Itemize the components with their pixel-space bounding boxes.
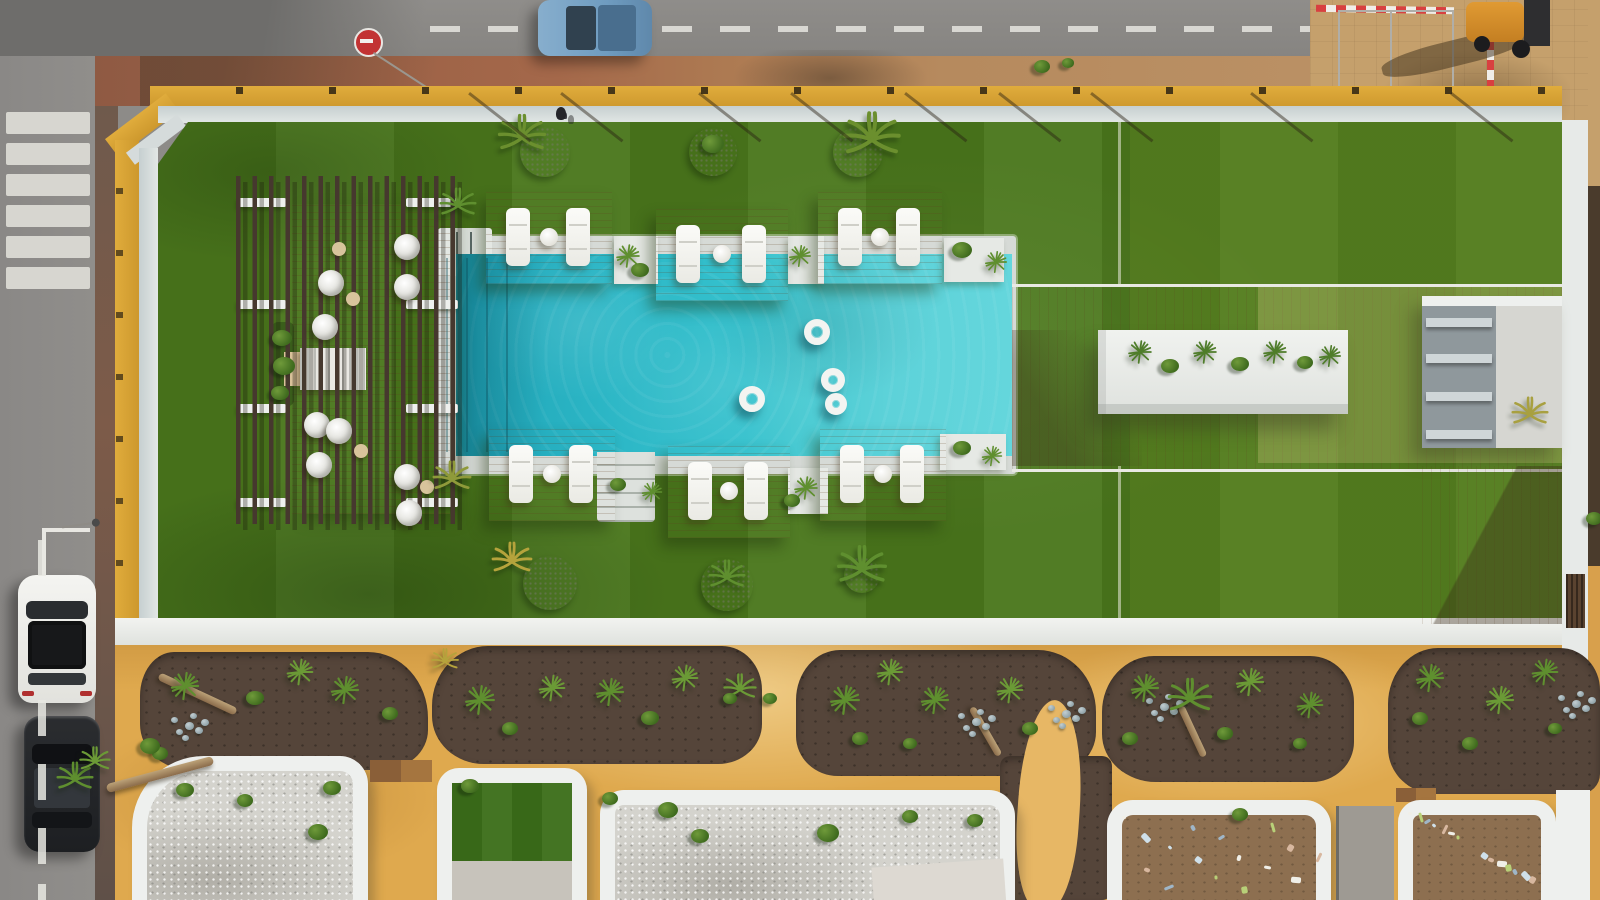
- perimeter-wall-top: [150, 86, 1562, 108]
- shrub-tuft: [1034, 60, 1050, 73]
- car-roof: [598, 5, 636, 51]
- stone: [1577, 691, 1584, 697]
- sun-lounger: [900, 445, 924, 503]
- deck-shadow-diagonal: [1422, 466, 1562, 624]
- round-lounge-chair: [396, 500, 422, 526]
- stone: [182, 735, 189, 741]
- structure-shelf: [1426, 430, 1492, 439]
- perimeter-wall-left: [115, 140, 139, 622]
- sun-lounger: [569, 445, 593, 503]
- agave-plant: [826, 681, 864, 719]
- stone: [1563, 707, 1570, 713]
- shrub-tuft: [1297, 356, 1313, 369]
- stone: [1078, 707, 1086, 714]
- grass-plant: [490, 540, 534, 584]
- road-dash: [38, 700, 46, 736]
- structure-shelf: [1426, 354, 1492, 363]
- coping-bottom: [115, 618, 1565, 645]
- stone: [195, 727, 203, 734]
- shrub-tuft: [1462, 737, 1478, 750]
- palm-plant: [78, 745, 112, 779]
- car-taillight: [80, 691, 92, 696]
- grass-plant: [1510, 395, 1550, 435]
- stone: [958, 713, 965, 719]
- car-roof: [28, 621, 86, 669]
- stone: [185, 722, 194, 730]
- forklift-wheel: [1474, 36, 1490, 52]
- lounger-platform: [668, 446, 790, 538]
- stone: [1048, 705, 1055, 711]
- shrub-tuft: [1122, 732, 1138, 745]
- sun-lounger: [742, 225, 766, 283]
- shrub-tuft: [273, 357, 295, 375]
- lounger-platform: [820, 429, 946, 521]
- shrub-tuft: [1232, 808, 1248, 821]
- agave-plant: [917, 682, 953, 718]
- construction-debris: [1408, 812, 1412, 815]
- shrub-tuft: [308, 824, 328, 840]
- car-rear-window: [32, 812, 92, 828]
- agave-plant: [979, 443, 1005, 469]
- car-windshield: [566, 6, 596, 50]
- forklift-cab: [1466, 2, 1524, 42]
- parked-car-blue: [538, 0, 652, 56]
- side-table: [543, 465, 561, 483]
- sun-lounger: [506, 208, 530, 266]
- stone: [963, 725, 970, 731]
- stone: [190, 713, 197, 719]
- shrub-tuft: [140, 738, 160, 754]
- stone: [1572, 700, 1581, 708]
- construction-debris: [1241, 886, 1248, 894]
- agave-plant: [283, 655, 317, 689]
- stone: [1558, 695, 1565, 701]
- pool-float-ring: [739, 386, 765, 412]
- shrub-tuft: [702, 135, 724, 153]
- pergola-side-table: [346, 292, 360, 306]
- sun-lounger: [688, 462, 712, 520]
- person-on-lawn: [556, 107, 566, 120]
- round-lounge-chair: [394, 234, 420, 260]
- agave-plant: [1412, 660, 1448, 696]
- grass-plant: [430, 647, 460, 677]
- structure-shelf: [1426, 318, 1492, 327]
- pergola-side-table: [354, 444, 368, 458]
- patio-turf-grass: [452, 783, 572, 861]
- crosswalk-stripe: [6, 174, 90, 196]
- shrub-tuft: [502, 722, 518, 735]
- shrub-tuft: [602, 792, 618, 805]
- construction-debris: [1456, 835, 1459, 839]
- patio-turf: [437, 768, 587, 900]
- gray-corridor: [1336, 806, 1394, 900]
- pool-lane-line: [486, 258, 488, 452]
- agave-plant: [535, 671, 569, 705]
- agave-plant: [873, 655, 907, 689]
- agave-plant: [327, 672, 363, 708]
- structure-shelf: [1426, 392, 1492, 401]
- structure-beam: [1422, 296, 1562, 306]
- construction-debris: [1122, 816, 1126, 819]
- round-lounge-chair: [312, 314, 338, 340]
- shrub-tuft: [382, 707, 398, 720]
- stone: [982, 723, 990, 730]
- round-lounge-chair: [326, 418, 352, 444]
- pool-float-ring: [804, 319, 830, 345]
- palm-plant: [835, 543, 889, 597]
- agave-plant: [167, 668, 203, 704]
- agave-plant: [1293, 688, 1327, 722]
- sun-lounger: [676, 225, 700, 283]
- round-lounge-chair: [306, 452, 332, 478]
- shrub-tuft: [610, 478, 626, 491]
- crosswalk-stripe: [6, 143, 90, 165]
- agave-plant: [1528, 655, 1562, 689]
- stone: [1569, 713, 1576, 719]
- pool-lane-line: [506, 258, 508, 452]
- round-lounge-chair: [394, 274, 420, 300]
- shrub-tuft: [237, 794, 253, 807]
- pergola-slats: [236, 176, 460, 524]
- patio-gravel: [132, 756, 368, 900]
- road-dash: [38, 884, 46, 900]
- road-dash: [38, 540, 46, 576]
- lounger-platform: [486, 192, 612, 284]
- shrub-tuft: [1062, 58, 1074, 68]
- stone: [969, 731, 976, 737]
- agave-plant: [461, 681, 499, 719]
- patio-construction: [1107, 800, 1331, 900]
- parking-mark: [42, 528, 90, 532]
- agave-plant: [1127, 670, 1163, 706]
- round-lounge-chair: [318, 270, 344, 296]
- turf-seam: [1118, 122, 1121, 285]
- car-windshield: [26, 601, 88, 619]
- stone: [1062, 710, 1071, 718]
- sun-lounger: [838, 208, 862, 266]
- side-table: [874, 465, 892, 483]
- stone: [1059, 723, 1066, 729]
- side-table: [713, 245, 731, 263]
- road-dash: [38, 828, 46, 864]
- stone: [1053, 717, 1060, 723]
- stone: [1151, 710, 1158, 716]
- agave-plant: [982, 248, 1010, 276]
- shrub-tuft: [1022, 722, 1038, 735]
- stone: [977, 709, 984, 715]
- lounger-platform: [818, 192, 942, 284]
- agave-plant: [592, 674, 628, 710]
- pool-deep-end-shadow: [456, 254, 546, 456]
- car-rear-window: [28, 673, 86, 685]
- sun-lounger: [840, 445, 864, 503]
- palm-plant: [707, 558, 747, 598]
- concrete-slab: [871, 858, 1006, 900]
- agave-plant: [1125, 337, 1155, 367]
- stone: [1157, 716, 1164, 722]
- outside-dirt-strip: [1588, 186, 1600, 566]
- agave-plant: [639, 479, 665, 505]
- parked-car-white: [18, 575, 96, 703]
- no-entry-sign: [354, 28, 383, 57]
- shrub-tuft: [902, 810, 918, 823]
- crosswalk-stripe: [6, 205, 90, 227]
- car-taillight: [22, 691, 34, 696]
- stone: [972, 718, 981, 726]
- forklift-wheel: [1512, 40, 1530, 58]
- agave-plant: [1482, 682, 1518, 718]
- wood-gate: [1566, 574, 1585, 628]
- shrub-tuft: [952, 242, 972, 258]
- pool-float-ring: [821, 368, 845, 392]
- agave-plant: [1232, 664, 1268, 700]
- road-dash: [38, 764, 46, 800]
- shrub-tuft: [817, 824, 839, 842]
- outside-pavement-strip: [1588, 0, 1600, 186]
- sun-lounger: [744, 462, 768, 520]
- forklift-mast: [1524, 0, 1550, 46]
- stone: [1072, 715, 1080, 722]
- crosswalk-stripe: [6, 267, 90, 289]
- white-wall-segment: [1556, 790, 1590, 900]
- sun-lounger: [509, 445, 533, 503]
- agave-plant: [993, 673, 1027, 707]
- crosswalk-stripe: [6, 236, 90, 258]
- side-table: [720, 482, 738, 500]
- pergola-side-table: [332, 242, 346, 256]
- shrub-tuft: [967, 814, 983, 827]
- shrub-tuft: [1217, 727, 1233, 740]
- agave-plant: [786, 242, 814, 270]
- shrub-tuft: [1412, 712, 1428, 725]
- side-table: [540, 228, 558, 246]
- stone: [1588, 697, 1596, 704]
- lounger-platform: [656, 209, 788, 301]
- construction-debris: [1214, 875, 1217, 879]
- shrub-tuft: [784, 494, 800, 507]
- shrub-tuft: [1586, 512, 1600, 525]
- agave-plant: [1190, 337, 1220, 367]
- palm-plant: [431, 459, 473, 501]
- sun-lounger: [566, 208, 590, 266]
- turf-seam: [1118, 466, 1121, 618]
- construction-debris: [1291, 877, 1301, 884]
- stone: [171, 717, 178, 723]
- agave-plant: [1260, 337, 1290, 367]
- shrub-tuft: [658, 802, 678, 818]
- agave-plant: [1316, 342, 1344, 370]
- palm-plant: [438, 186, 478, 226]
- stone: [1582, 705, 1590, 712]
- agave-plant: [668, 661, 702, 695]
- stone: [1067, 701, 1074, 707]
- round-lounge-chair: [394, 464, 420, 490]
- stone: [988, 715, 996, 722]
- side-table: [871, 228, 889, 246]
- wood-step: [370, 760, 432, 782]
- aerial-photo-pool-complex: const data = JSON.parse(document.getElem…: [0, 0, 1600, 900]
- pool-float-ring: [825, 393, 847, 415]
- construction-debris: [1505, 864, 1512, 872]
- sun-lounger: [896, 208, 920, 266]
- lounger-platform: [489, 429, 615, 521]
- stone: [201, 719, 209, 726]
- shrub-tuft: [852, 732, 868, 745]
- palm-plant: [1166, 676, 1214, 724]
- crosswalk-stripe: [6, 112, 90, 134]
- coping-left: [139, 148, 158, 620]
- shrub-tuft: [272, 330, 292, 346]
- stone: [176, 729, 183, 735]
